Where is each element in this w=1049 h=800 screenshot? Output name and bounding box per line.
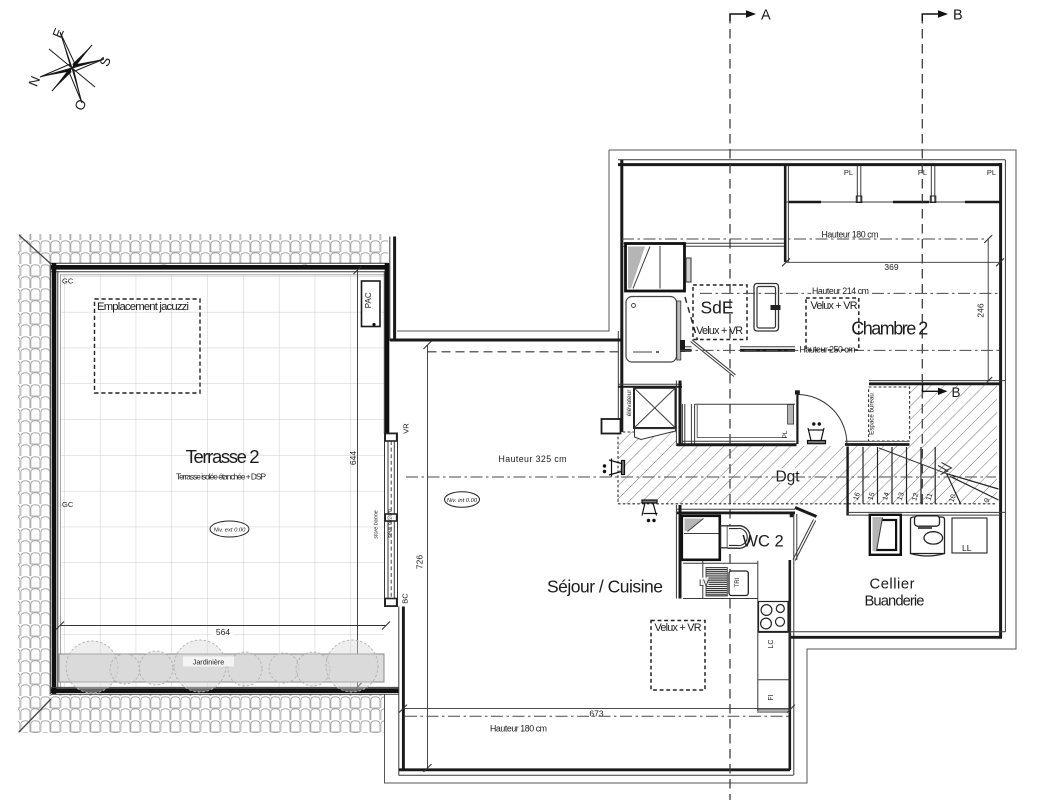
- svg-text:LV: LV: [699, 578, 709, 588]
- svg-text:Velux + VR: Velux + VR: [655, 622, 702, 634]
- svg-text:FI: FI: [768, 694, 775, 700]
- svg-text:Séjour / Cuisine: Séjour / Cuisine: [547, 577, 663, 597]
- svg-text:WC 2: WC 2: [742, 533, 783, 551]
- svg-text:Hauteur 214 cm: Hauteur 214 cm: [812, 286, 869, 296]
- svg-text:Jardinière: Jardinière: [193, 658, 225, 667]
- svg-text:Terrasse isolée étanchée + DSP: Terrasse isolée étanchée + DSP: [176, 472, 266, 482]
- svg-text:A: A: [761, 8, 771, 24]
- svg-text:PL: PL: [987, 168, 996, 177]
- svg-text:GC: GC: [62, 277, 74, 286]
- svg-text:726: 726: [414, 555, 424, 569]
- svg-text:Hauteur 325 cm: Hauteur 325 cm: [499, 454, 567, 464]
- svg-text:B: B: [953, 8, 963, 24]
- svg-text:Hauteur 180 cm: Hauteur 180 cm: [822, 230, 879, 240]
- svg-text:Emplacement jacuzzi: Emplacement jacuzzi: [97, 301, 189, 313]
- svg-text:VR: VR: [402, 423, 411, 434]
- svg-text:Velux + VR: Velux + VR: [811, 300, 858, 312]
- svg-text:Chambre 2: Chambre 2: [851, 319, 928, 339]
- svg-text:246: 246: [976, 303, 986, 317]
- svg-text:369: 369: [884, 262, 898, 272]
- svg-text:Hauteur 180 cm: Hauteur 180 cm: [490, 724, 547, 734]
- svg-text:Terrasse 2: Terrasse 2: [186, 446, 260, 467]
- svg-text:store banne: store banne: [374, 510, 380, 538]
- svg-text:Buanderie: Buanderie: [865, 594, 925, 610]
- svg-text:élévateur: élévateur: [626, 389, 633, 417]
- svg-text:644: 644: [348, 451, 358, 465]
- svg-text:PL: PL: [782, 430, 789, 438]
- svg-text:TRI: TRI: [734, 577, 741, 587]
- svg-text:Espace bureau: Espace bureau: [869, 393, 876, 435]
- svg-text:Niv. ext 0.00: Niv. ext 0.00: [214, 527, 247, 533]
- svg-text:Hauteur 250 cm: Hauteur 250 cm: [800, 344, 856, 354]
- svg-text:PAC: PAC: [364, 292, 373, 308]
- svg-text:GC: GC: [62, 500, 74, 509]
- svg-text:673: 673: [589, 709, 603, 719]
- svg-text:Niv. int 0.00: Niv. int 0.00: [447, 498, 478, 504]
- svg-text:Velux + VR: Velux + VR: [696, 325, 743, 337]
- svg-text:B: B: [952, 385, 961, 400]
- svg-text:PL: PL: [844, 168, 853, 177]
- svg-text:LL: LL: [962, 543, 972, 553]
- svg-text:Cellier: Cellier: [870, 577, 915, 593]
- svg-text:BC: BC: [401, 593, 410, 604]
- svg-text:SdE: SdE: [700, 298, 733, 318]
- svg-text:LC: LC: [768, 640, 775, 649]
- svg-text:seuil ht/2cm: seuil ht/2cm: [388, 509, 394, 538]
- svg-text:564: 564: [216, 627, 230, 637]
